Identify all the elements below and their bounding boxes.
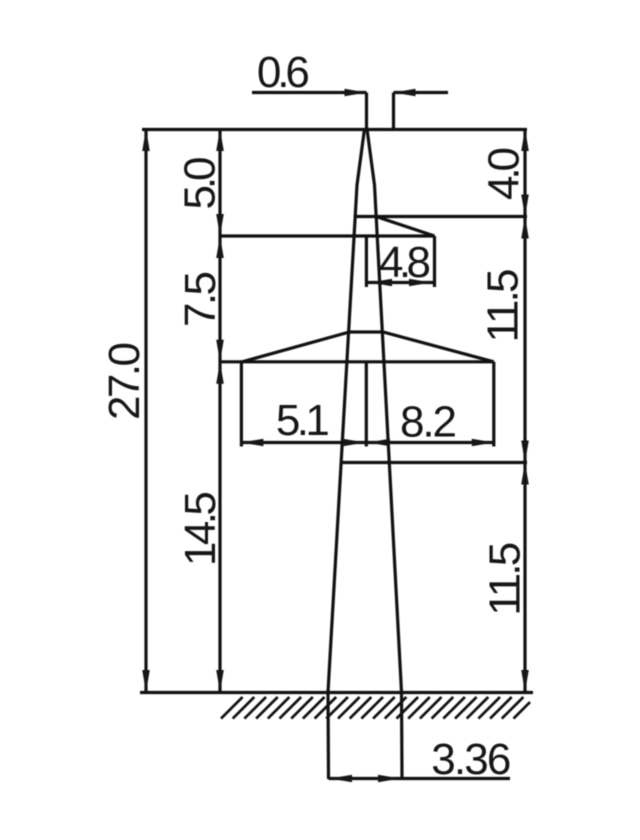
svg-text:7.5: 7.5 xyxy=(176,271,225,327)
svg-text:14.5: 14.5 xyxy=(176,491,225,566)
svg-text:0.6: 0.6 xyxy=(257,48,310,97)
svg-text:4.8: 4.8 xyxy=(379,238,431,287)
svg-text:11.5: 11.5 xyxy=(479,269,528,343)
svg-text:3.36: 3.36 xyxy=(431,735,511,784)
svg-text:5.0: 5.0 xyxy=(175,157,224,210)
svg-text:8.2: 8.2 xyxy=(400,398,457,447)
svg-text:5.1: 5.1 xyxy=(276,396,330,445)
svg-text:11.5: 11.5 xyxy=(480,542,529,616)
svg-text:27.0: 27.0 xyxy=(100,342,149,420)
svg-text:4.0: 4.0 xyxy=(480,147,529,200)
